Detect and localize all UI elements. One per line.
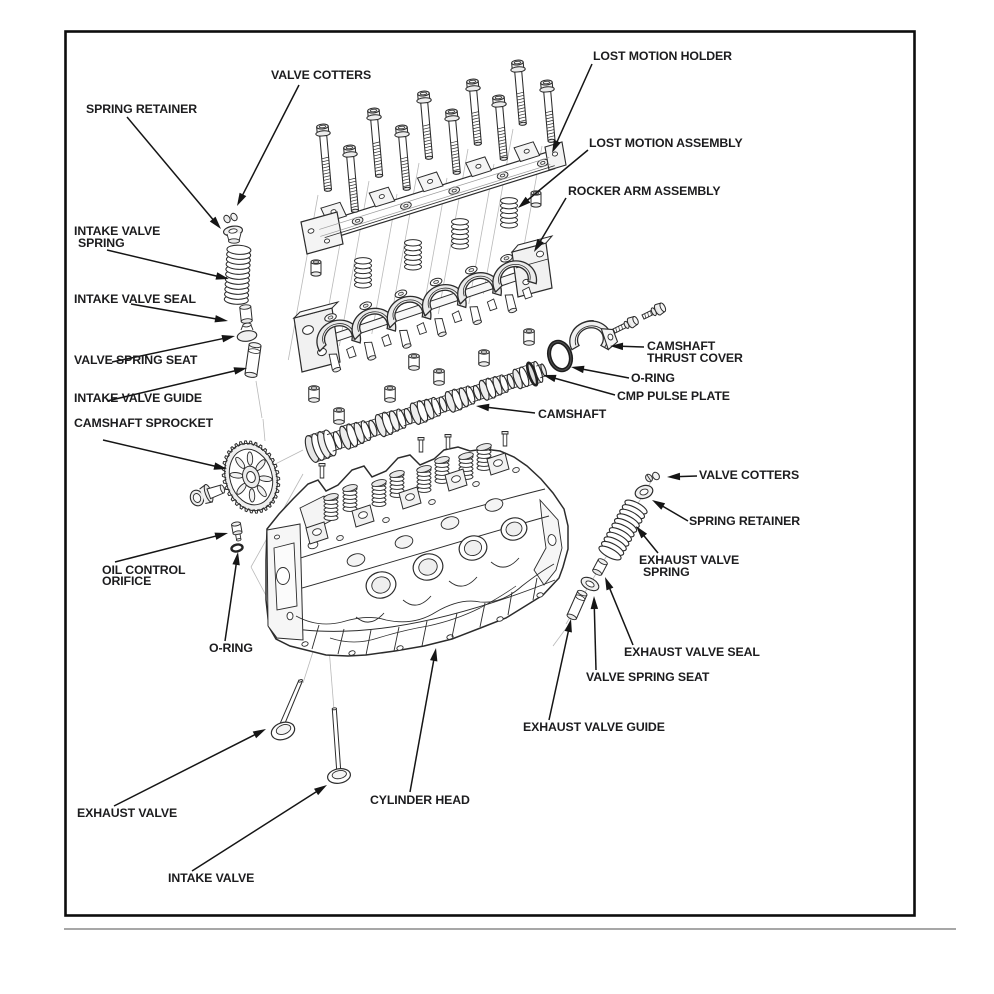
- svg-text:EXHAUST VALVE GUIDE: EXHAUST VALVE GUIDE: [523, 720, 665, 734]
- svg-text:SPRING: SPRING: [78, 236, 125, 250]
- svg-text:VALVE COTTERS: VALVE COTTERS: [271, 68, 371, 82]
- svg-text:SPRING RETAINER: SPRING RETAINER: [86, 102, 197, 116]
- svg-text:O-RING: O-RING: [631, 371, 675, 385]
- svg-text:ORIFICE: ORIFICE: [102, 574, 151, 588]
- svg-text:ROCKER ARM ASSEMBLY: ROCKER ARM ASSEMBLY: [568, 184, 721, 198]
- svg-text:CAMSHAFT: CAMSHAFT: [538, 407, 607, 421]
- svg-text:SPRING: SPRING: [643, 565, 690, 579]
- svg-text:INTAKE VALVE: INTAKE VALVE: [168, 871, 254, 885]
- svg-text:CAMSHAFT SPROCKET: CAMSHAFT SPROCKET: [74, 416, 214, 430]
- svg-text:VALVE SPRING SEAT: VALVE SPRING SEAT: [74, 353, 198, 367]
- svg-text:LOST MOTION HOLDER: LOST MOTION HOLDER: [593, 49, 732, 63]
- svg-text:SPRING RETAINER: SPRING RETAINER: [689, 514, 800, 528]
- svg-text:THRUST COVER: THRUST COVER: [647, 351, 743, 365]
- svg-text:INTAKE VALVE GUIDE: INTAKE VALVE GUIDE: [74, 391, 202, 405]
- svg-text:LOST MOTION ASSEMBLY: LOST MOTION ASSEMBLY: [589, 136, 743, 150]
- svg-text:EXHAUST VALVE: EXHAUST VALVE: [77, 806, 177, 820]
- svg-text:VALVE SPRING SEAT: VALVE SPRING SEAT: [586, 670, 710, 684]
- svg-text:EXHAUST VALVE SEAL: EXHAUST VALVE SEAL: [624, 645, 760, 659]
- svg-text:VALVE COTTERS: VALVE COTTERS: [699, 468, 799, 482]
- svg-text:O-RING: O-RING: [209, 641, 253, 655]
- svg-text:CYLINDER HEAD: CYLINDER HEAD: [370, 793, 470, 807]
- svg-text:INTAKE VALVE SEAL: INTAKE VALVE SEAL: [74, 292, 197, 306]
- svg-text:CMP PULSE PLATE: CMP PULSE PLATE: [617, 389, 730, 403]
